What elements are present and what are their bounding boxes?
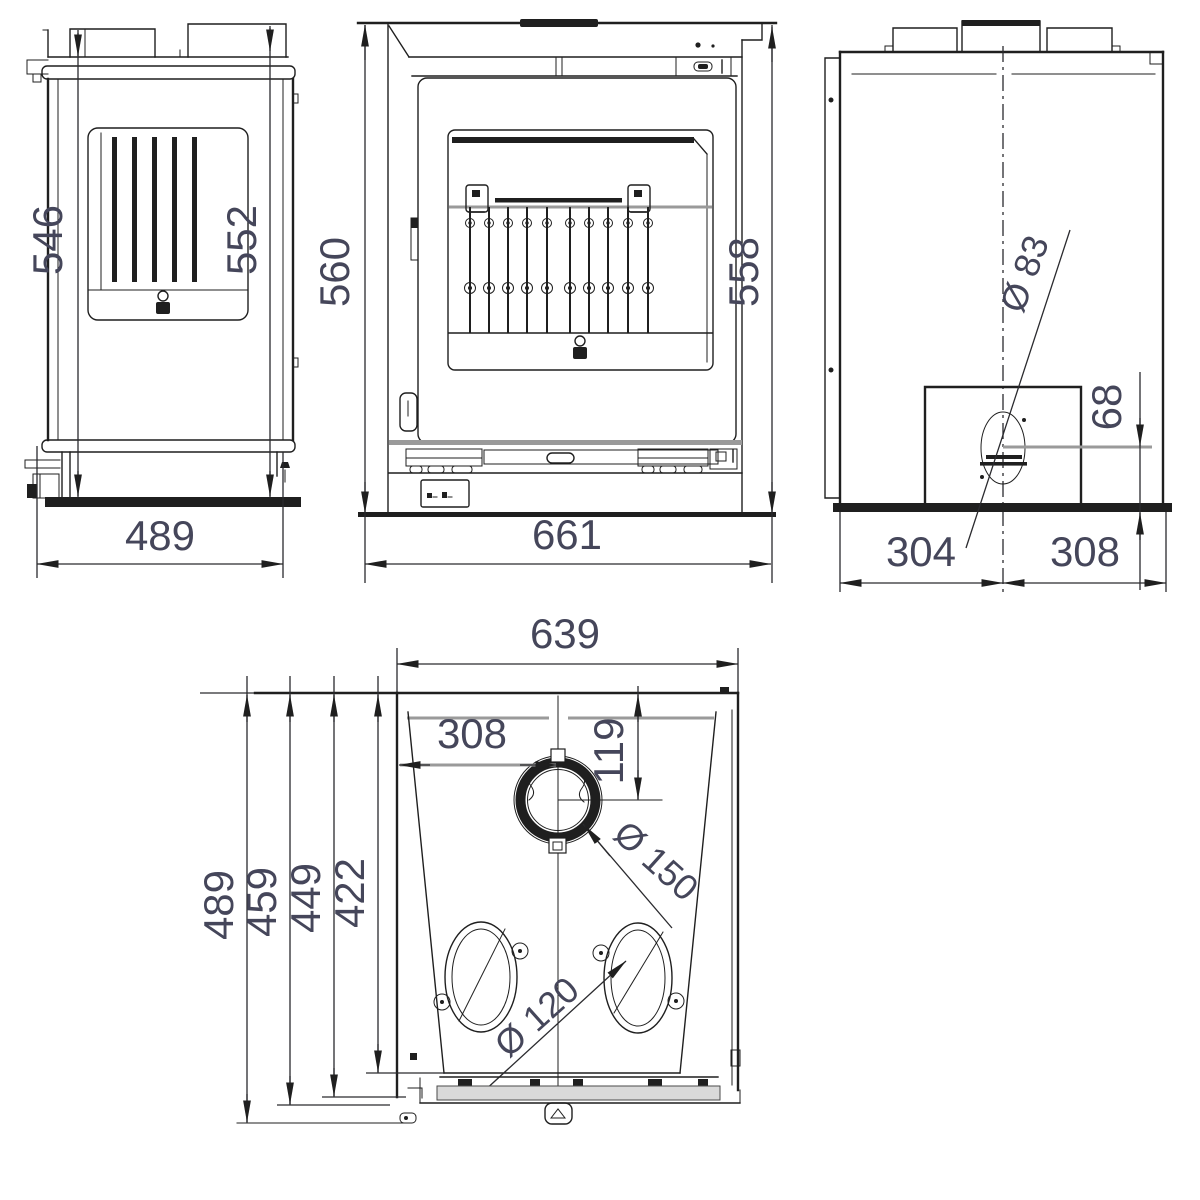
side-dim-height-left: 546: [24, 30, 78, 497]
dim-rear-width-right: 308: [1050, 528, 1120, 575]
dim-top-width: 639: [530, 610, 600, 657]
rear-top-tab-right: [1047, 28, 1112, 52]
dim-front-width: 661: [532, 511, 602, 558]
door-glass: [448, 130, 713, 370]
dim-top-flue-y: 119: [585, 718, 632, 785]
front-dim-height-left: 560: [311, 25, 365, 583]
front-control-band: [412, 42, 737, 76]
rear-left-flange: [825, 58, 840, 498]
top-dim-flue-y: 119: [585, 686, 638, 800]
side-dim-height-right: 552: [218, 26, 270, 497]
dim-top-depth-overall: 489: [195, 870, 242, 940]
side-top-tab-left: [70, 29, 155, 57]
dim-top-depth-3: 449: [282, 863, 329, 933]
side-view: 546 552 489: [24, 24, 301, 578]
grate-top-bar: [495, 198, 622, 203]
rear-top-tab-left: [893, 28, 957, 52]
top-dim-width: 639: [397, 610, 738, 705]
dim-side-height-right: 552: [218, 205, 265, 275]
grate-rods: [465, 207, 654, 333]
stove-technical-drawing: 546 552 489: [0, 0, 1200, 1200]
dim-top-depth-4: 422: [326, 858, 373, 928]
dim-side-width: 489: [125, 512, 195, 559]
side-dim-width: 489: [37, 446, 283, 578]
ash-drawer-handle: [547, 453, 574, 463]
dim-front-height-left: 560: [311, 237, 358, 307]
dim-top-flue-x: 308: [437, 710, 507, 757]
dim-side-height-left: 546: [24, 205, 71, 275]
dim-rear-width-left: 304: [886, 528, 956, 575]
side-bottom-molding: [42, 440, 295, 452]
front-door: [418, 78, 736, 443]
rating-plate: [421, 480, 469, 507]
top-dim-flue-diameter: Ø 150: [583, 813, 707, 928]
side-lock-icon: [158, 291, 168, 301]
side-base-plate: [45, 497, 301, 507]
dim-rear-flue-diameter: Ø 83: [992, 230, 1057, 317]
dim-front-height-right: 558: [720, 237, 767, 307]
front-dim-height-right: 558: [720, 25, 772, 583]
top-view: 639: [195, 610, 740, 1124]
dim-top-depth-2: 459: [238, 867, 285, 937]
rear-ground-line: [833, 503, 1172, 512]
top-door-handle: [545, 1103, 572, 1124]
top-front-strip: [237, 1053, 740, 1124]
dim-top-outlet-diameter: Ø 120: [486, 969, 586, 1065]
front-top-plate-tab: [520, 19, 598, 27]
dim-rear-offset: 68: [1083, 384, 1130, 431]
side-top-molding: [42, 66, 295, 79]
door-lock-icon: [575, 336, 585, 346]
rear-view: Ø 83 68 304 308: [825, 20, 1172, 593]
front-view: 560 558 661: [311, 19, 776, 583]
front-dim-width: 661: [365, 511, 771, 564]
rear-dim-flue-diameter: Ø 83: [966, 230, 1070, 548]
front-base-strip: [389, 440, 742, 473]
dim-top-flue-diameter: Ø 150: [606, 813, 706, 909]
side-grille-slats: [112, 137, 197, 282]
side-top-tab-right: [188, 24, 286, 57]
